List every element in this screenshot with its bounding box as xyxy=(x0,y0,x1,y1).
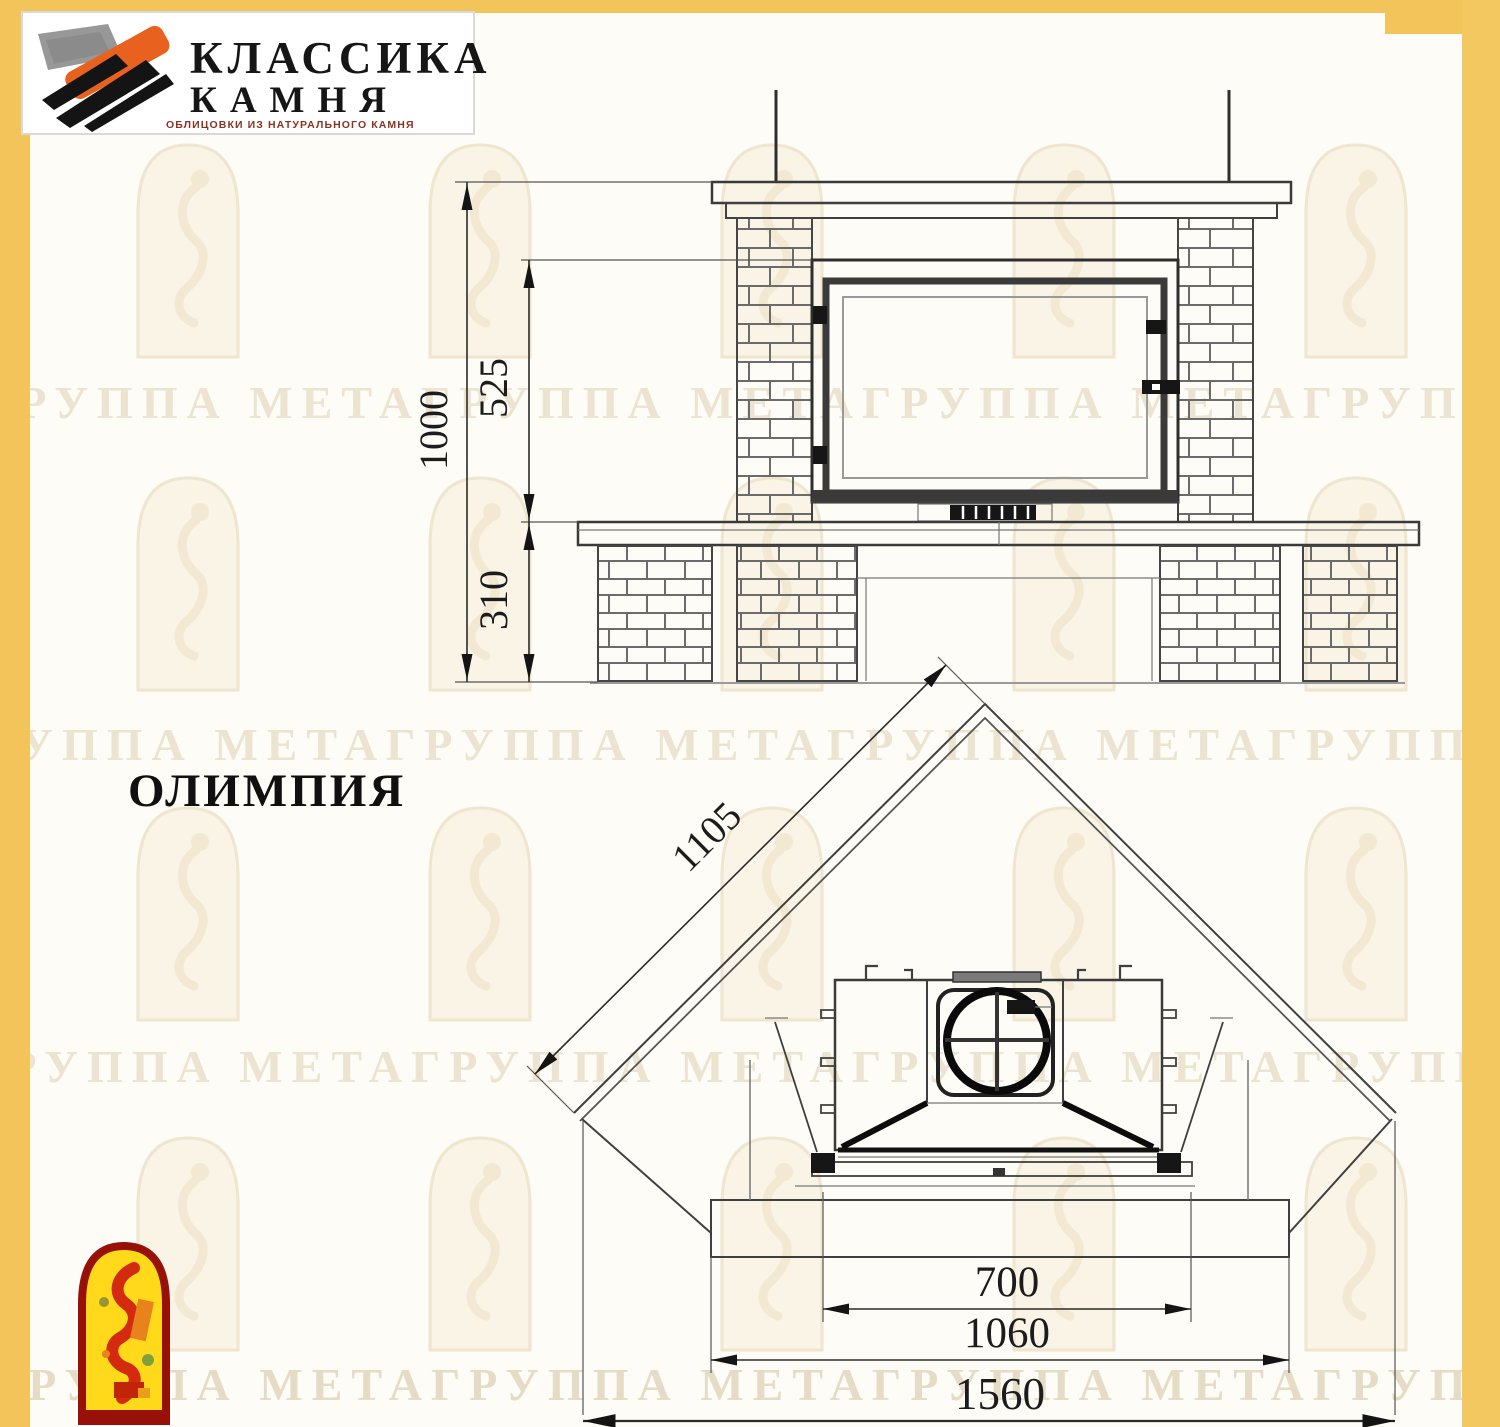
flue-collar xyxy=(953,972,1041,982)
damper-handle-icon xyxy=(1007,1000,1035,1014)
left-brick-column xyxy=(737,218,812,522)
dim-total-height: 1000 xyxy=(411,390,456,470)
brick-pedestal xyxy=(598,546,712,681)
latch-icon xyxy=(1146,320,1166,334)
dim-body-width: 1060 xyxy=(964,1310,1050,1357)
logo-title-line2: КАМНЯ xyxy=(190,80,399,121)
model-name: ОЛИМПИЯ xyxy=(128,765,406,817)
brick-pedestal xyxy=(1303,546,1397,681)
right-brick-column xyxy=(1178,218,1253,522)
dim-opening-height: 525 xyxy=(471,358,516,418)
hinge-icon xyxy=(813,446,827,464)
company-logo: КЛАССИКА КАМНЯ ОБЛИЦОВКИ ИЗ НАТУРАЛЬНОГО… xyxy=(22,12,492,134)
logo-tagline: ОБЛИЦОВКИ ИЗ НАТУРАЛЬНОГО КАМНЯ xyxy=(166,119,415,131)
dim-opening-width: 700 xyxy=(975,1259,1040,1306)
bench-slab xyxy=(578,522,1419,545)
logo-title-line1: КЛАССИКА xyxy=(190,33,492,83)
watermark-text-row: ГРУППА МЕТАГРУППА МЕТАГРУППА МЕТАГРУППА … xyxy=(0,1359,1500,1410)
brick-pedestal xyxy=(1160,546,1280,681)
door-handle-icon xyxy=(1142,380,1180,394)
dim-bench-height: 310 xyxy=(471,570,516,630)
watermark-text-row: ГРУППА МЕТАГРУППА МЕТАГРУППА МЕТАГРУППА … xyxy=(0,719,1500,770)
meta-group-emblem-icon xyxy=(82,1246,166,1421)
hinge-icon xyxy=(813,306,827,324)
chimney-pipes xyxy=(776,90,1229,182)
page: ГРУППА МЕТАГРУППА МЕТАГРУППА МЕТАГРУППА … xyxy=(0,0,1500,1427)
brick-pedestal xyxy=(737,546,857,681)
drawing-sheet: ГРУППА МЕТАГРУППА МЕТАГРУППА МЕТАГРУППА … xyxy=(0,0,1500,1427)
dim-overall-width: 1560 xyxy=(955,1369,1045,1419)
